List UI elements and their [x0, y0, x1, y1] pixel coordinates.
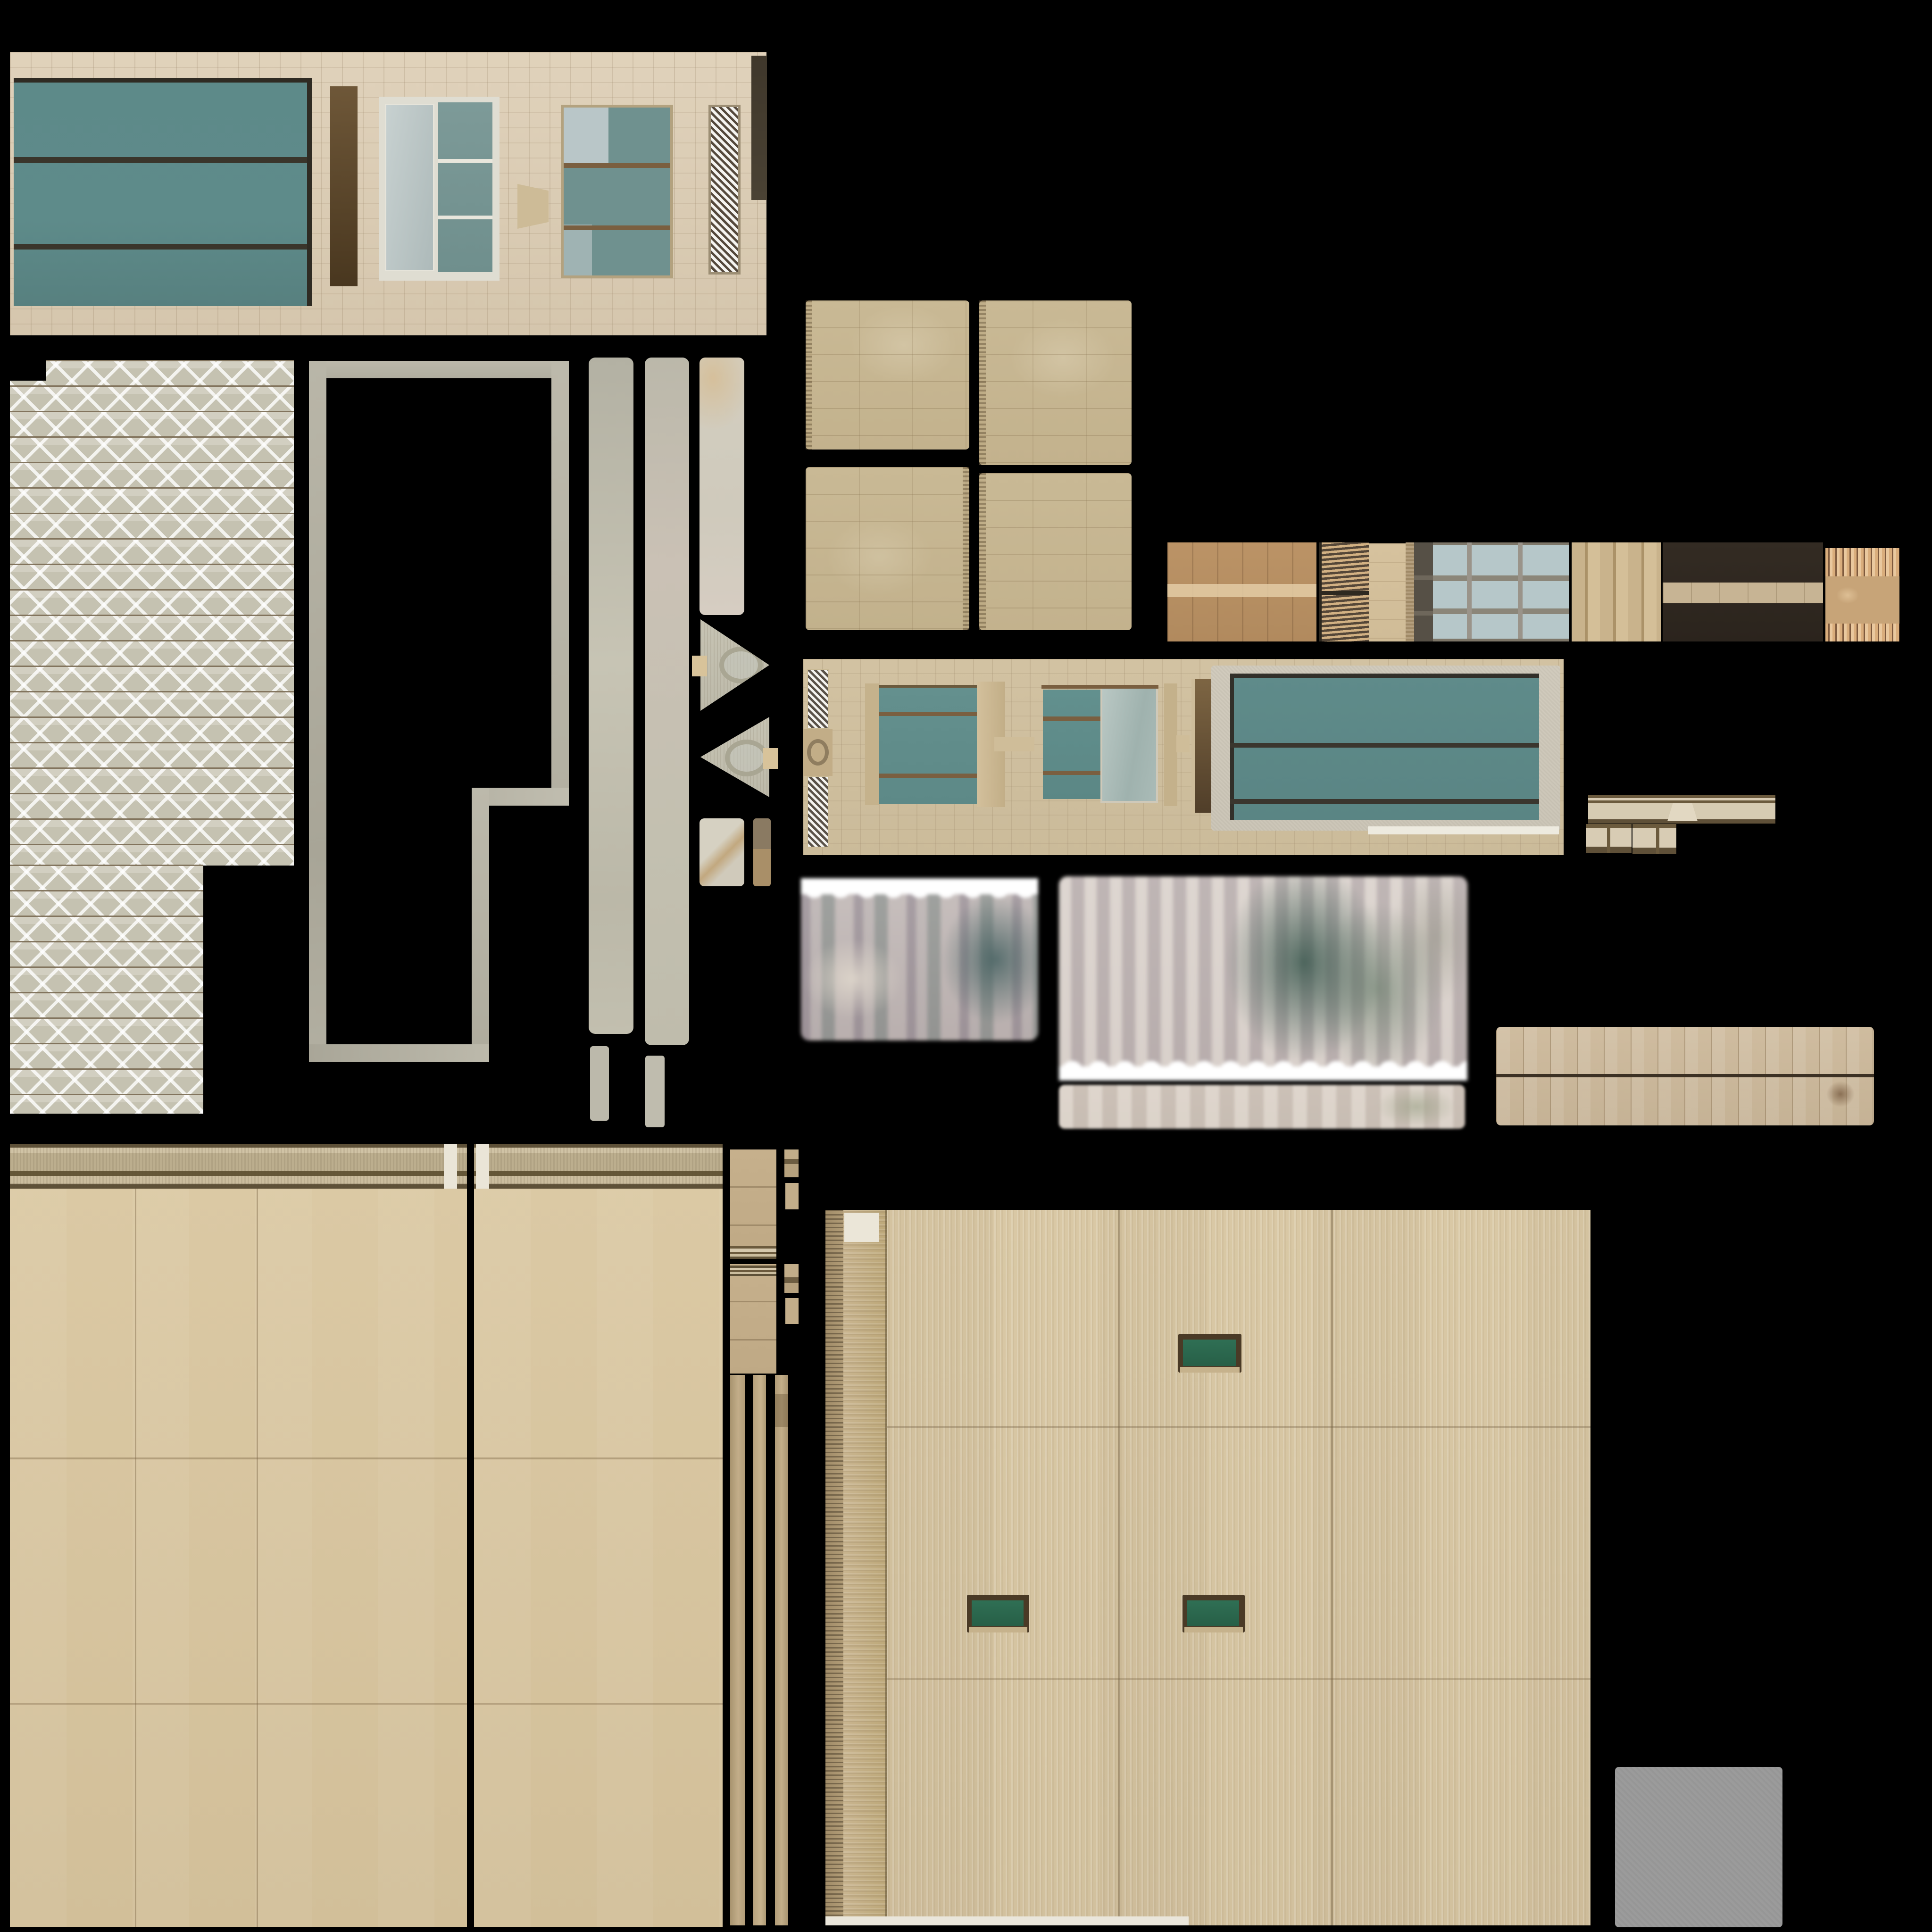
wall-panel-left-b [474, 1144, 723, 1927]
window2-glass [1043, 690, 1100, 799]
granite-edge-col-1 [825, 1210, 843, 1925]
window-glass [1183, 1340, 1236, 1366]
blurry-photo-3 [1059, 1085, 1465, 1129]
facade-strip-top [10, 52, 766, 335]
right-jamb-column [1164, 683, 1177, 806]
curtain-glass-mid [1230, 674, 1539, 820]
marker-ellipse [719, 647, 763, 683]
window1-jamb [865, 683, 879, 805]
stone-columns [1572, 542, 1661, 641]
texture-atlas [0, 0, 1932, 1932]
white-base-strip [1368, 826, 1559, 834]
fixed-pane [438, 102, 492, 272]
glass-mullion-h1 [879, 712, 978, 716]
window-mullion-h1 [564, 163, 670, 168]
rib-top [1825, 548, 1899, 576]
wall-panel-left-a [10, 1144, 467, 1927]
facade-strip-right [1167, 542, 1899, 641]
small-plate-brown [753, 818, 771, 886]
arrow-marker-left-tab [763, 748, 778, 769]
scallop-band-top [801, 878, 1038, 907]
block-seam-h1 [10, 1457, 467, 1459]
rough-left-edge [979, 300, 986, 465]
blue-glass-wall [1433, 542, 1569, 641]
trim-outline-top [309, 361, 569, 378]
rough-right-edge [963, 467, 969, 630]
glass-top-edge [1230, 674, 1539, 678]
glass-mullion-v1 [1467, 542, 1472, 641]
glass-right-edge [307, 78, 312, 306]
window-right [561, 105, 673, 278]
arrow-marker-right-tab [692, 656, 707, 676]
window-sill [1180, 1367, 1240, 1373]
travertine-wall [887, 1210, 1591, 1925]
block-seam-h1 [474, 1457, 723, 1459]
trim-outline-bottom [309, 1044, 489, 1062]
louver-left-edge [1319, 542, 1322, 641]
pier-block-4 [785, 1298, 799, 1324]
glass-mullion-h1 [1043, 716, 1100, 721]
cornice-pilaster [476, 1144, 489, 1189]
glass-mullion-h2 [14, 244, 312, 250]
block-seam-v1 [135, 1189, 136, 1927]
blurry-photo-2 [1059, 876, 1467, 1081]
window2-top-rail [1041, 685, 1158, 689]
medallion-block [803, 729, 833, 776]
bay-window [379, 97, 500, 281]
glass-mullion-h2 [1230, 799, 1539, 804]
louver-section [1319, 542, 1369, 641]
cornice-divider [1656, 824, 1659, 854]
shingle-sheet-ext [10, 865, 203, 1114]
green-window-3 [1183, 1595, 1245, 1632]
window-sill [1184, 1627, 1243, 1632]
plank-strip [1496, 1027, 1874, 1125]
rough-left-edge [979, 473, 986, 630]
mullion-break-1 [1414, 575, 1433, 580]
cornice-piece-low-1 [1586, 824, 1632, 853]
masonry-square-3 [806, 467, 969, 630]
jamb-tab [1176, 735, 1190, 752]
wall-panel-right [825, 1210, 1591, 1925]
panel-seam-h2 [887, 1678, 1591, 1680]
dark-brown-block [1663, 542, 1823, 641]
masonry-square-2 [979, 300, 1132, 465]
shingle-sheet-main [10, 360, 294, 866]
uv-strip-1 [589, 358, 633, 1034]
rough-column [1406, 542, 1414, 641]
thin-strip-1 [730, 1375, 745, 1925]
pane-mullion-1 [438, 159, 492, 163]
uv-strip-2 [645, 358, 689, 1045]
thin-strip-2 [753, 1375, 766, 1925]
rib-bottom [1825, 624, 1899, 641]
strip-dark-band [775, 1394, 788, 1427]
pier-block-1 [784, 1149, 799, 1177]
facade-strip-mid [803, 659, 1564, 855]
panel-seam-v2 [1331, 1210, 1333, 1925]
white-base-strip [825, 1916, 1189, 1925]
pier-block-2 [785, 1183, 799, 1209]
arrow-marker-right [700, 619, 769, 711]
wall-body [474, 1189, 723, 1927]
block-seam-v2 [257, 1189, 258, 1927]
glass-top-edge [14, 78, 312, 83]
trim-outline-inner-right [472, 788, 489, 1062]
ribbed-copper-panel [1825, 548, 1899, 641]
gray-placeholder-block [1615, 1767, 1782, 1927]
rough-left-edge [806, 300, 812, 450]
window-glass [972, 1600, 1024, 1626]
glass-mullion-h1 [1230, 743, 1539, 748]
scallop-band-bottom [1059, 1052, 1467, 1081]
pier-block-3 [784, 1264, 799, 1293]
marker-ellipse [725, 740, 768, 776]
plank-mid-line [1496, 1074, 1874, 1077]
masonry-square-1 [806, 300, 969, 450]
window-sill [969, 1627, 1027, 1632]
glass-mullion-h2 [879, 774, 978, 778]
shingle-corner-notch [10, 360, 46, 381]
green-window-2 [967, 1595, 1029, 1632]
window-glass [1187, 1600, 1239, 1626]
trim-outline-right-upper [551, 361, 569, 806]
granite-edge-col-2 [843, 1210, 887, 1925]
mullion-column [1414, 542, 1433, 641]
louver-divider [1319, 591, 1369, 595]
uv-strip-1-stub [590, 1046, 609, 1121]
glass-mullion-v2 [1518, 542, 1523, 641]
pane-mullion-2 [438, 216, 492, 219]
blurry-photo-1 [801, 878, 1038, 1041]
green-window-1 [1178, 1334, 1241, 1373]
pier-column-2 [730, 1264, 776, 1374]
beige-band [1663, 583, 1823, 603]
glass-bottom-edge [1433, 639, 1569, 641]
block-seam-h2 [474, 1703, 723, 1705]
cornice-divider [1607, 824, 1610, 853]
medallion-ellipse [807, 739, 829, 766]
window1-glass [879, 685, 978, 804]
vent-grate-lower [807, 776, 829, 848]
dark-edge-strip [751, 56, 767, 200]
door-light-edge [1191, 679, 1195, 813]
vent-grate-upper [807, 669, 829, 729]
cornice-piece-top [1588, 795, 1775, 824]
panel-seam-h1 [887, 1426, 1591, 1428]
uv-strip-2-stub [645, 1056, 665, 1127]
block-seam-h2 [10, 1703, 467, 1705]
small-plate-pale [700, 818, 744, 886]
mullion-break-2 [1414, 611, 1433, 616]
pier-base-molding [730, 1246, 776, 1259]
vent-grate [708, 105, 741, 275]
stone-bracket [517, 184, 549, 229]
window-mullion-h2 [564, 225, 670, 230]
trim-outline-left [309, 361, 326, 1062]
wall-body [10, 1189, 467, 1927]
open-pane [385, 104, 434, 271]
terracotta-panel [1167, 542, 1316, 641]
glass-mullion-h1 [14, 157, 312, 163]
door-pillar [330, 86, 358, 286]
light-band [1167, 584, 1316, 597]
uv-strip-3 [700, 358, 744, 615]
wall-cornice [474, 1144, 723, 1189]
glass-mullion-h2 [1043, 771, 1100, 775]
arrow-marker-left [700, 717, 769, 797]
cornice-pilaster [444, 1144, 457, 1189]
rib-mid-mottled [1825, 576, 1899, 624]
glass-mullion-h1 [1433, 575, 1569, 581]
curtain-glass-panel [14, 78, 312, 306]
low-reflection [564, 225, 592, 275]
glass-top-line [879, 685, 978, 688]
glass-top-edge [1433, 542, 1569, 545]
window2-open-pane [1100, 685, 1158, 803]
sky-reflection [564, 108, 608, 163]
white-cap-block [844, 1213, 879, 1242]
cornice-piece-low-2 [1632, 824, 1676, 854]
masonry-square-4 [979, 473, 1132, 630]
tile-column [1369, 543, 1406, 641]
plank-smudge [1826, 1081, 1855, 1107]
wall-cornice [10, 1144, 467, 1189]
thin-strip-3 [775, 1375, 788, 1925]
pier-top-molding [730, 1266, 776, 1276]
glass-mullion-h2 [1433, 608, 1569, 614]
sill-bracket [994, 737, 1034, 751]
pier-column-1 [730, 1149, 776, 1259]
panel-seam-v1 [1118, 1210, 1120, 1925]
cornice-keystone [1667, 803, 1698, 821]
